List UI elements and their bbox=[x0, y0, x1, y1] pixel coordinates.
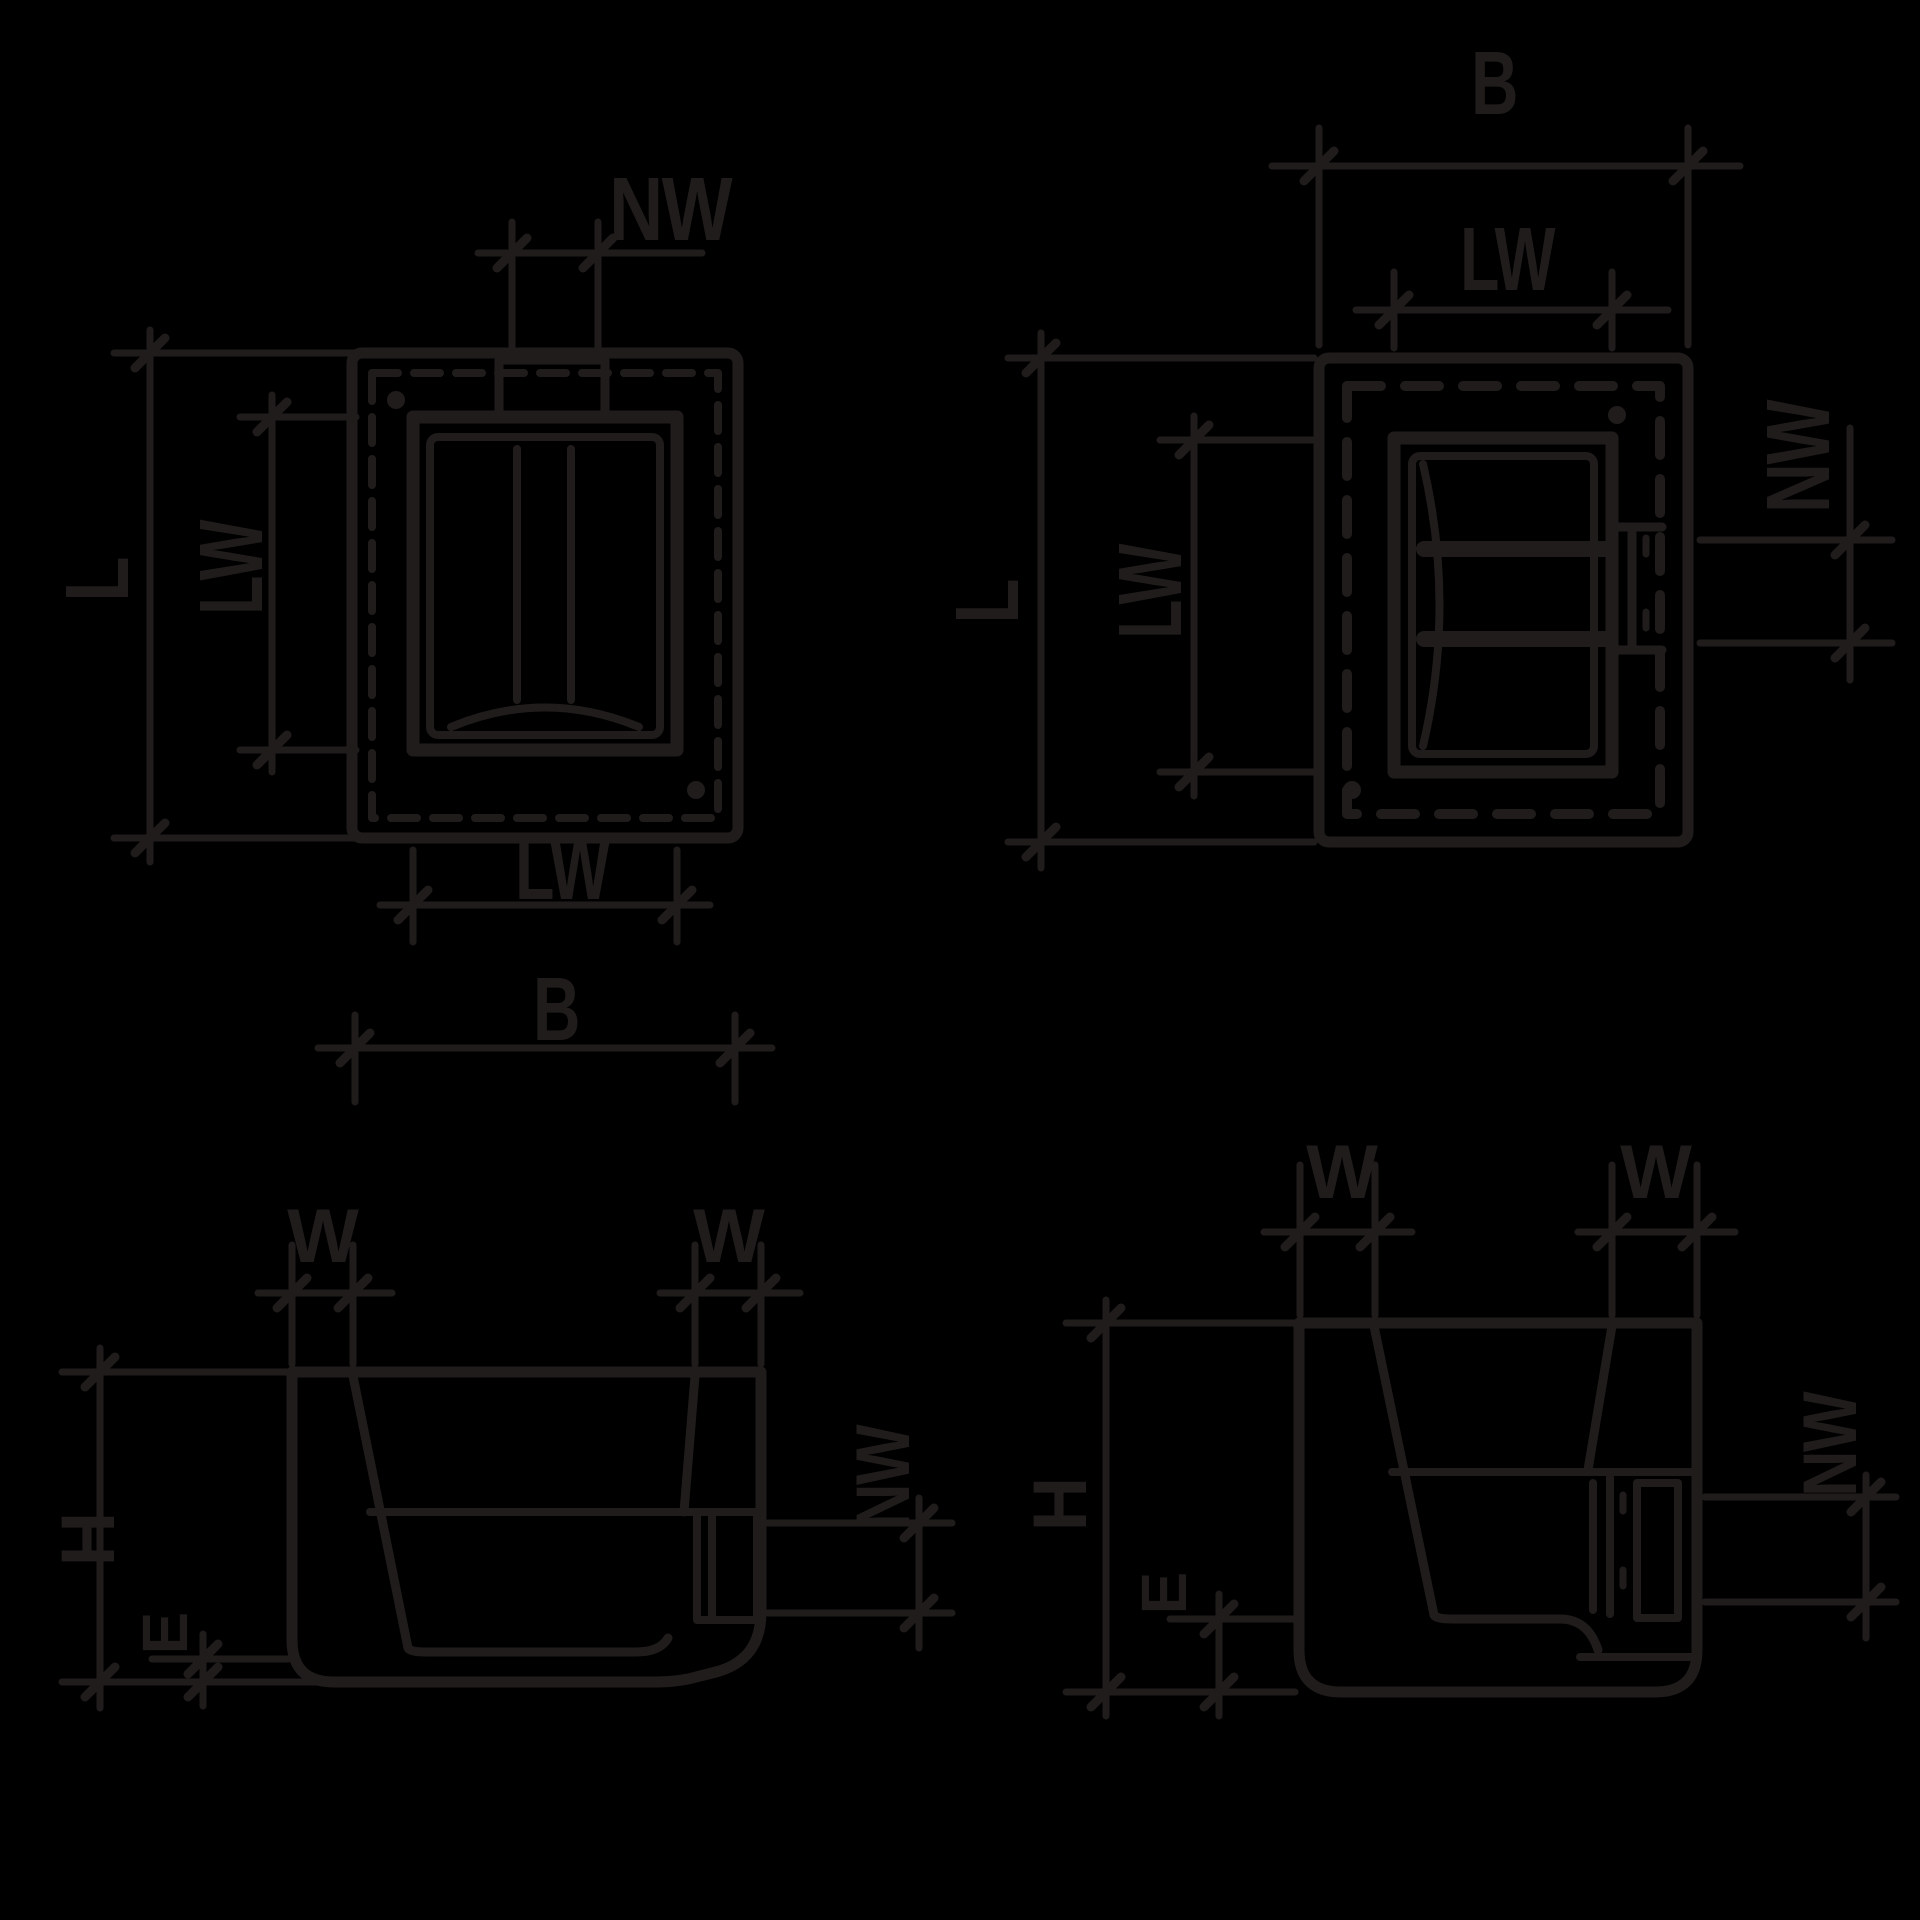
label-b: B bbox=[1471, 34, 1517, 134]
interior-left-and-floor bbox=[1374, 1326, 1598, 1650]
technical-drawing-page: NW L LW LW B B LW L LW NW W W H E NW W W… bbox=[0, 0, 1920, 1920]
outlet-stub-top bbox=[499, 360, 605, 416]
line-work: NW L LW LW B B LW L LW NW W W H E NW W W… bbox=[46, 34, 1896, 1716]
label-e: E bbox=[1128, 1573, 1200, 1614]
label-lw: LW bbox=[1101, 544, 1201, 639]
outlet-socket bbox=[697, 1512, 757, 1620]
interior-right-slant bbox=[1588, 1326, 1612, 1470]
label-h: H bbox=[1018, 1479, 1103, 1532]
label-l: L bbox=[938, 580, 1038, 624]
label-b: B bbox=[533, 960, 579, 1060]
label-h: H bbox=[46, 1514, 131, 1567]
label-lw: LW bbox=[1460, 210, 1555, 310]
label-w: W bbox=[693, 1194, 765, 1279]
interior-right-slant bbox=[684, 1376, 695, 1512]
grate-center-bar bbox=[517, 449, 571, 700]
bolt-hole-dot bbox=[387, 391, 405, 409]
grate-cross-bars bbox=[1424, 549, 1606, 639]
grate-frame bbox=[413, 417, 677, 750]
outlet-socket bbox=[1580, 1478, 1693, 1657]
label-nw: NW bbox=[841, 1424, 926, 1530]
label-w: W bbox=[1620, 1130, 1692, 1215]
label-nw: NW bbox=[609, 160, 733, 260]
label-lw: LW bbox=[515, 819, 610, 919]
bolt-hole-dot bbox=[1608, 406, 1626, 424]
label-lw: LW bbox=[182, 520, 282, 615]
grate-bottom-arc bbox=[451, 708, 639, 728]
drawing-canvas: NW L LW LW B B LW L LW NW W W H E NW W W… bbox=[0, 0, 1920, 1920]
label-w: W bbox=[1306, 1130, 1378, 1215]
label-l: L bbox=[48, 558, 148, 602]
label-nw: NW bbox=[1788, 1391, 1873, 1497]
label-w: W bbox=[287, 1194, 359, 1279]
grate-side-arc bbox=[1423, 464, 1440, 746]
section-view-cross bbox=[1066, 1165, 1896, 1716]
dimension-nw-right bbox=[1705, 1475, 1896, 1638]
outlet-stub-right bbox=[1612, 527, 1662, 650]
bolt-hole-dot bbox=[1343, 781, 1361, 799]
plan-view-grate bbox=[114, 222, 772, 1102]
label-e: E bbox=[129, 1613, 201, 1654]
label-nw: NW bbox=[1749, 399, 1849, 513]
grate-opening bbox=[430, 437, 660, 735]
bolt-hole-dot bbox=[687, 781, 705, 799]
